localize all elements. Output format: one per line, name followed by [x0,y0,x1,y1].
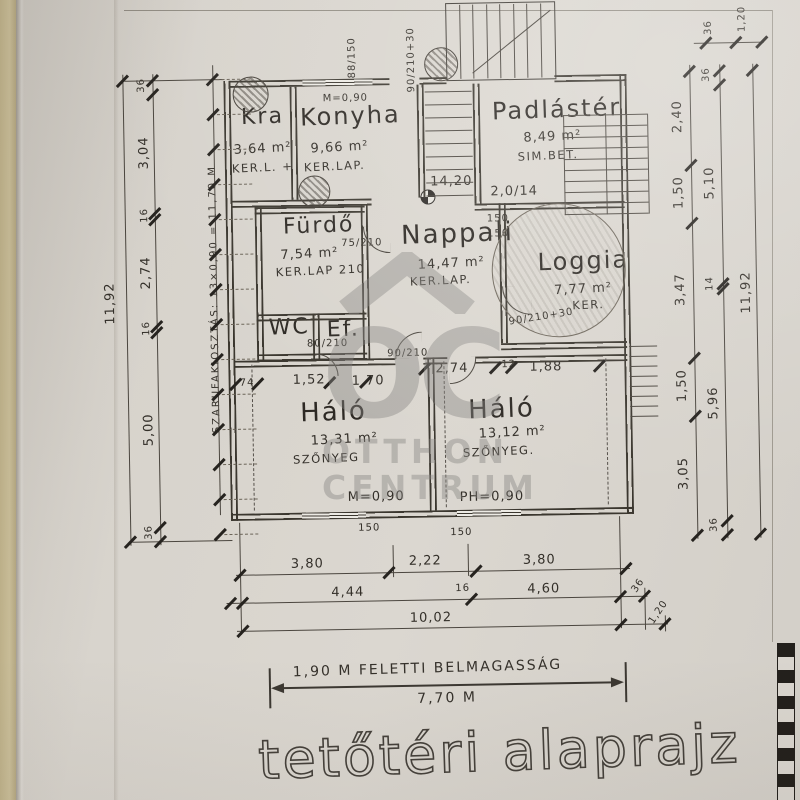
height-note-line [283,681,613,688]
window-symbol [302,78,372,86]
stair-tread [426,195,473,197]
room-padlaster-label: Padlástér [492,95,622,123]
dim-bottom: 4,44 [331,586,364,600]
wall [472,84,481,204]
ladder-rung [630,405,658,407]
room-konyha-area: 9,66 m² [310,140,369,156]
ladder-rung [630,385,658,387]
loggia-pencil-circle [491,202,627,338]
height-note-value: 7,70 M [417,690,477,706]
ladder-rung [629,356,657,358]
rafter-line [222,429,256,431]
dim-left-total: 11,92 [104,282,118,324]
rafter-line [221,324,255,326]
ladder-rung [629,366,657,368]
wall [364,510,457,519]
dim-left: 5,00 [142,413,156,446]
watermark-monogram: OC [322,318,492,434]
dim-line [237,623,668,632]
wall [372,78,389,85]
top-parapet-note: M=0,90 [323,94,368,105]
stair-tread [426,169,473,171]
room-konyha-finish: KER.LAP. [304,160,366,174]
padlaster-beam-size: 2,0/14 [490,185,538,199]
room-padlaster-finish: SIM.BET. [518,149,579,163]
top-window-size: 88/150 [347,37,358,78]
dim-bottom: 3,80 [291,557,324,571]
dim-line [719,64,728,538]
wall [554,74,626,82]
stair-tread [426,156,473,158]
dim-line [122,75,131,546]
room-furdo-label: Fürdő [283,214,355,238]
height-note: 1,90 M FELETTI BELMAGASSÁG [293,658,563,680]
wall [255,207,265,360]
dim-right: 1,50 [675,369,689,402]
ladder-rail [647,114,650,214]
rafter-line [224,498,258,500]
dim-right: 2,40 [671,100,685,133]
arrow-right-icon [611,677,624,687]
ladder-rung [630,395,658,397]
rafter-line [223,464,257,466]
window-symbol [457,509,521,517]
dim-left: 3,04 [137,136,151,169]
rafter-line [219,219,253,221]
window-mark-150d: 150 [450,528,472,538]
wall [416,85,425,198]
wall [519,507,634,516]
roof-slope-dashed-line [605,358,609,504]
room-kamra-finish: KER.L. + [232,161,294,175]
dim-right-mid: 36 [709,517,719,532]
dim-bottom: 4,60 [527,582,560,596]
stair-tread [425,104,472,106]
dim-right-mid: 5,10 [703,166,717,199]
dim-bottom: 16 [455,584,470,594]
rafter-line [222,394,256,396]
watermark-otthon-centrum: OC OTTHON CENTRUM [322,252,492,506]
watermark-text-line1: OTTHON [322,434,492,470]
dim-left: 16 [142,321,152,336]
dim-bottom: 2,22 [409,554,442,568]
window-mark-150c: 150 [358,523,380,533]
dim-right: 1,50 [672,176,686,209]
dim-bottom: 3,80 [523,553,556,567]
dim-right: 3,47 [674,273,688,306]
arrow-left-icon [271,683,284,693]
watermark-text-line2: CENTRUM [322,470,492,506]
dim-corner: 1,20 [737,6,747,32]
ladder-rung [629,346,657,348]
stair-tread [426,143,473,145]
stair-tread [425,117,472,119]
wall [619,74,634,514]
dim-right-mid: 36 [702,67,712,82]
rafter-line [220,289,254,291]
ladder-rung [630,376,658,378]
wall [501,341,627,350]
wall [231,513,306,521]
height-note-end [625,662,627,702]
scanned-floorplan-sheet: Kra 3,64 m² KER.L. + Konyha 9,66 m² KER.… [0,0,800,800]
dim-line [132,540,232,543]
wall [290,87,299,200]
dim-right-total: 11,92 [739,271,753,313]
dim-left: 2,74 [139,256,153,289]
ladder-rung [630,415,658,417]
stair-tread [425,130,472,132]
stair-tread [425,91,472,93]
dim-left: 16 [140,208,150,223]
dim-corner: 36 [704,20,714,35]
dim-line [239,523,242,635]
room-konyha-label: Konyha [300,102,401,129]
ladder-rail [605,114,608,214]
dim-right-mid: 14 [705,276,715,291]
top-door-size: 90/210+30 [406,27,417,92]
dim-right-mid: 5,96 [707,386,721,419]
window-symbol [302,512,366,520]
rafter-line [218,184,252,186]
dim-bottom-total: 10,02 [410,611,452,625]
rafter-line [219,254,253,256]
dim-line [152,74,161,545]
rafter-line [224,533,258,535]
sheet-title: tetőtéri alaprajz [257,712,741,792]
dim-line [227,596,648,604]
dim-right: 3,05 [677,457,691,490]
